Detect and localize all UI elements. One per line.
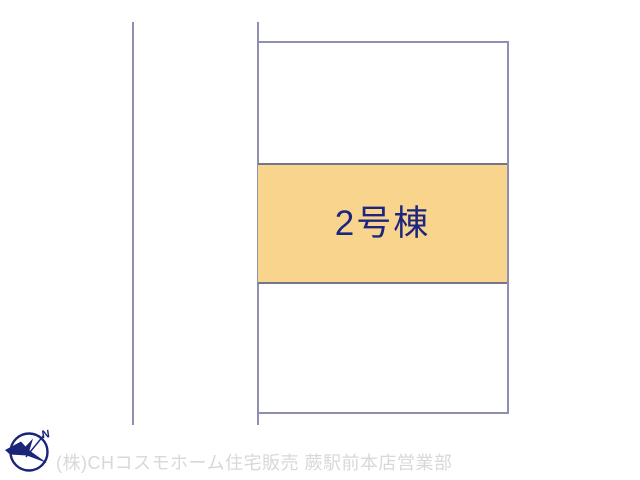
lot-boundary-right [507,41,509,414]
lot-boundary-top [257,41,508,43]
company-watermark: (株)CHコスモホーム住宅販売 蕨駅前本店営業部 [56,449,452,475]
boundary-line-left [132,22,134,425]
lot-boundary-bottom [257,412,509,414]
north-compass-icon: N [2,424,60,478]
lot-label: 2号棟 [335,206,430,241]
highlighted-lot-band: 2号棟 [258,163,507,284]
north-label: N [41,428,51,441]
site-plan: 2号棟 N (株)CHコスモホーム住宅販売 蕨駅前本店営業部 [0,0,640,480]
